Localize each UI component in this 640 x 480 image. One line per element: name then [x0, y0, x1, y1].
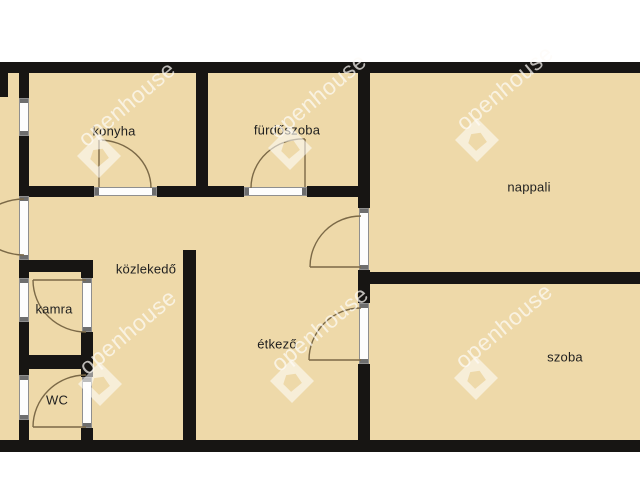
- room-label-kamra: kamra: [35, 302, 72, 317]
- wall-livingroom-left-a: [358, 73, 370, 208]
- wall-kitchen-bathroom-divider: [196, 73, 208, 186]
- door-bedroom: [359, 303, 369, 364]
- wall-left-a: [19, 73, 29, 98]
- door-kitchen: [94, 187, 157, 196]
- wall-left-e: [19, 420, 29, 452]
- wall-corridor-top-a: [19, 186, 94, 197]
- wall-exterior-bottom: [0, 440, 640, 452]
- wall-livingroom-bedroom-divider: [358, 272, 640, 284]
- wall-left-edge-stub: [0, 62, 8, 97]
- floorplan-canvas: konyha fürdőszoba nappali közlekedő kamr…: [0, 0, 640, 480]
- door-pantry: [82, 278, 92, 332]
- room-label-nappali: nappali: [507, 180, 550, 195]
- wall-corridor-top-b: [157, 186, 244, 197]
- room-label-wc: WC: [46, 393, 68, 408]
- wall-hall-dining-divider: [183, 250, 196, 440]
- door-left-room: [19, 196, 29, 260]
- wall-corridor-top-c: [307, 186, 358, 197]
- window-kitchen: [19, 98, 29, 136]
- window-wc: [19, 375, 29, 420]
- door-bathroom: [244, 187, 307, 196]
- door-livingroom: [359, 208, 369, 270]
- wall-livingroom-left-c: [358, 364, 370, 442]
- wall-pantry-right-a: [81, 260, 93, 278]
- room-label-szoba: szoba: [547, 350, 583, 365]
- window-pantry: [19, 278, 29, 322]
- wall-pantry-right-c: [81, 428, 93, 452]
- room-label-kozlekedo: közlekedő: [116, 262, 176, 277]
